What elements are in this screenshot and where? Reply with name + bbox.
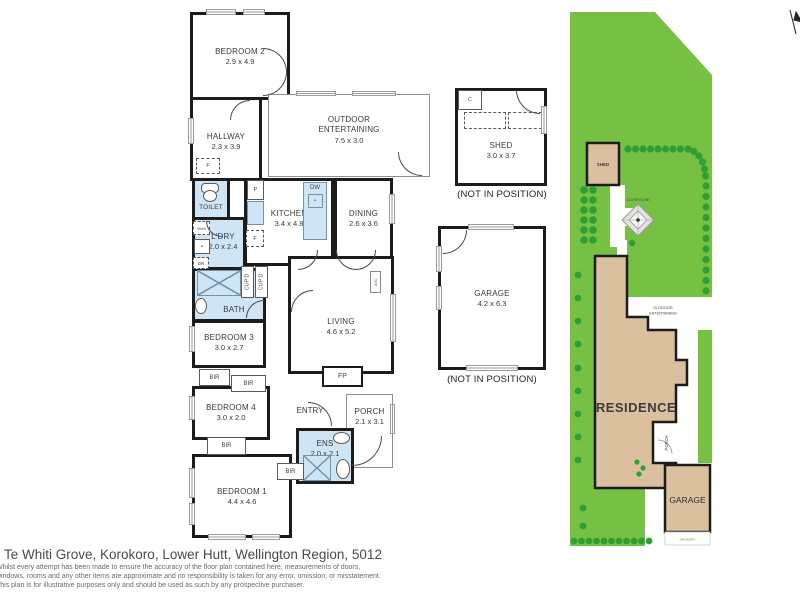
room-dims: 3.0 x 3.7 xyxy=(458,151,544,161)
dryer: DR xyxy=(193,257,209,269)
fireplace: FP xyxy=(322,366,363,387)
site-shed-label: SHED xyxy=(597,162,610,167)
room-dims: 2.6 x 3.6 xyxy=(337,219,390,229)
window xyxy=(189,468,195,498)
site-garage-label: GARAGE xyxy=(669,495,706,505)
room-bedroom4: BEDROOM 4 3.0 x 2.0 xyxy=(192,386,270,440)
built-in-robe: BIR xyxy=(231,375,266,392)
fridge: F xyxy=(246,230,264,247)
shed-caption: (NOT IN POSITION) xyxy=(440,189,564,200)
dishwasher-label: DW xyxy=(310,185,320,191)
room-dims: 4.2 x 6.3 xyxy=(441,299,543,309)
laundry-tub: • xyxy=(194,239,210,254)
compass-icon xyxy=(790,10,800,34)
room-name: BEDROOM 4 xyxy=(195,403,267,413)
freezer: F xyxy=(196,158,220,174)
room-dims: 2.1 x 3.1 xyxy=(347,417,392,427)
ens-toilet-icon xyxy=(336,459,350,479)
window xyxy=(466,365,518,371)
disclaimer-line: This plan is for illustrative purposes o… xyxy=(0,581,304,590)
window xyxy=(208,534,246,540)
bath-basin-icon xyxy=(195,298,207,314)
window xyxy=(189,396,195,420)
cupboard: CUP'D xyxy=(241,266,254,298)
window xyxy=(389,194,395,224)
window xyxy=(436,246,442,272)
room-name: PORCH xyxy=(347,407,392,417)
site-plan: RESIDENCE SHED GARAGE OUTDOOR ENTERTAINI… xyxy=(558,0,800,600)
room-dims: 2.3 x 3.9 xyxy=(193,142,259,152)
room-name: DINING xyxy=(337,209,390,219)
toilet-bowl-icon xyxy=(203,190,217,202)
floorplan-page: BEDROOM 2 2.9 x 4.9 HALLWAY 2.3 x 3.9 OU… xyxy=(0,0,800,600)
window xyxy=(243,9,265,15)
cupboard: CUP'D xyxy=(255,266,268,298)
room-name: HALLWAY xyxy=(193,132,259,142)
aircon-unit: A/C xyxy=(370,271,381,293)
room-name: SHED xyxy=(458,141,544,151)
garage-caption: (NOT IN POSITION) xyxy=(430,374,554,385)
room-dims: 7.5 x 3.0 xyxy=(299,136,399,146)
pantry: P xyxy=(247,180,264,200)
shed-cupboard: C xyxy=(458,90,482,110)
room-dims: 3.0 x 2.0 xyxy=(195,413,267,423)
site-driveway-label: DRIVEWAY xyxy=(680,538,696,542)
window xyxy=(189,326,195,352)
site-outdoor-label-2: ENTERTAINING xyxy=(649,312,677,316)
room-dims: 3.0 x 2.7 xyxy=(195,343,263,353)
room-bedroom3: BEDROOM 3 3.0 x 2.7 xyxy=(192,320,266,368)
built-in-robe: BIR xyxy=(277,463,304,480)
property-address: 5 Te Whiti Grove, Korokoro, Lower Hutt, … xyxy=(0,547,382,562)
room-name: OUTDOOR ENTERTAINING xyxy=(299,115,399,136)
kitchen-island: DW • xyxy=(303,182,327,240)
site-residence-label: RESIDENCE xyxy=(596,400,676,415)
room-name: GARAGE xyxy=(441,289,543,299)
window xyxy=(468,224,514,230)
shower-icon xyxy=(197,270,241,296)
window xyxy=(541,106,547,134)
ens-shower-icon xyxy=(303,455,331,481)
room-name: TOILET xyxy=(195,204,227,212)
window xyxy=(296,91,336,96)
kitchen-sink xyxy=(247,201,264,225)
window xyxy=(206,9,236,15)
room-name: BATH xyxy=(223,305,245,314)
site-outdoor-label-1: OUTDOOR xyxy=(653,306,673,310)
window xyxy=(390,294,396,342)
site-porch-label: PORCH xyxy=(664,435,669,450)
window xyxy=(188,118,194,144)
room-dims: 4.6 x 5.2 xyxy=(291,327,391,337)
built-in-robe: BIR xyxy=(199,369,230,386)
site-clothes-line-label: CLOTHES LINE xyxy=(626,198,649,202)
shed-storage-box xyxy=(508,112,542,129)
window xyxy=(189,503,195,525)
window xyxy=(390,404,395,434)
room-name: BEDROOM 3 xyxy=(195,333,263,343)
shed-storage-box xyxy=(464,112,506,129)
room-dims: 4.4 x 4.6 xyxy=(195,497,289,507)
ens-basin-icon xyxy=(333,432,350,444)
window xyxy=(352,91,396,96)
dishwasher-unit: • xyxy=(308,194,323,208)
window xyxy=(436,286,442,310)
room-name: BEDROOM 1 xyxy=(195,487,289,497)
room-name: LIVING xyxy=(291,317,391,327)
built-in-robe: BIR xyxy=(207,437,246,455)
window xyxy=(252,534,280,540)
